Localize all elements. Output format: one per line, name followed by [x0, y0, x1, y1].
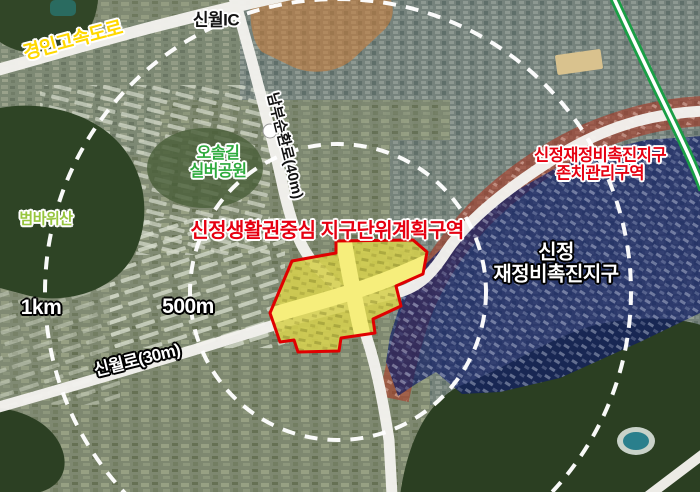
stadium-pool	[623, 432, 649, 450]
road-junction-dot-icon	[263, 124, 277, 138]
satellite-planning-map: 경인고속도로 신월IC 남부순환로(40m) 오솔길 실버공원 범바위산 신정생…	[0, 0, 700, 492]
forest-osolgil	[147, 128, 263, 208]
map-graphics	[0, 0, 700, 492]
pond-top-left	[50, 0, 76, 16]
